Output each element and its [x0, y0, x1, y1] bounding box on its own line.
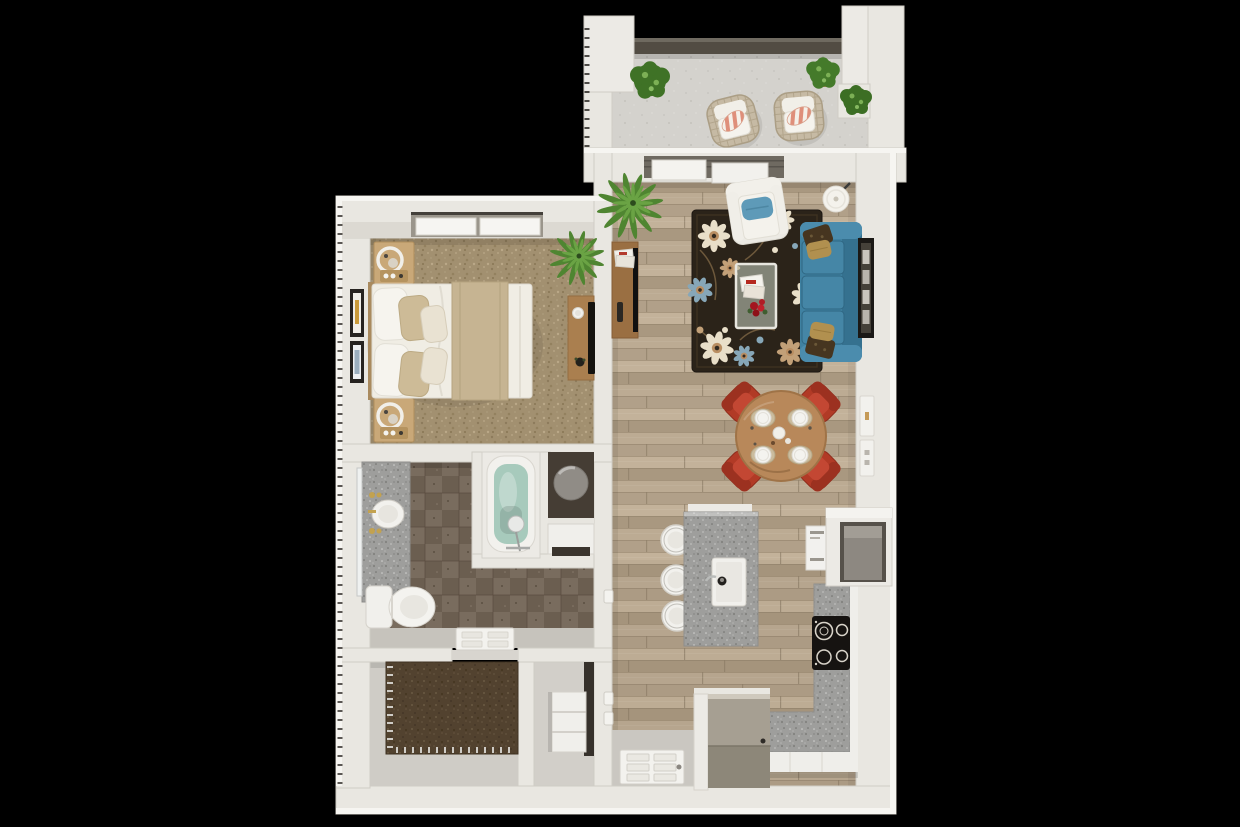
cooktop	[812, 616, 850, 670]
kitchen-island	[684, 504, 758, 646]
fridge-top	[708, 698, 770, 746]
bathroom-door-leaf	[456, 628, 514, 650]
pantry-cabinet	[826, 508, 892, 586]
water-heater-closet	[548, 452, 594, 524]
place-setting-1	[751, 409, 775, 427]
wall-closet-divider	[518, 662, 534, 786]
brass-handle	[369, 492, 375, 498]
bedroom-wall-art-1	[350, 289, 364, 337]
nightstand-2	[374, 398, 414, 442]
nightstand-1	[374, 242, 414, 284]
toilet	[366, 586, 435, 628]
shelf-cabinet	[552, 692, 586, 752]
window-pane	[416, 218, 476, 235]
cabinet-slot	[552, 547, 590, 556]
balcony-wall-right	[868, 6, 904, 152]
rim-bottom	[336, 808, 896, 814]
brass-spout	[368, 510, 376, 513]
pillow-accent	[420, 305, 449, 344]
media-console	[612, 242, 638, 338]
window-pane	[480, 218, 540, 235]
rim-left	[336, 196, 342, 786]
counter-side-right	[850, 584, 858, 752]
sofa	[800, 222, 862, 362]
vanity-mirror	[357, 468, 362, 596]
refrigerator	[694, 688, 770, 790]
bathtub	[482, 452, 540, 558]
window-head	[411, 212, 543, 215]
switch-panel	[860, 440, 874, 476]
remote-control	[617, 302, 623, 322]
wall-bathroom-closet-left	[336, 648, 452, 662]
wall-bathroom-closet-right	[518, 648, 612, 662]
wall-hinge-nub-2	[604, 692, 613, 705]
walk-in-closet	[386, 662, 518, 754]
fridge-handle	[761, 739, 766, 744]
fridge-front	[708, 746, 770, 788]
pillow-accent	[420, 347, 449, 386]
bedroom-desk	[568, 296, 595, 380]
balcony-railing-edge	[632, 38, 846, 42]
place-setting-4	[788, 446, 812, 464]
seat-cushion	[802, 276, 844, 309]
closet-carpet	[386, 662, 518, 754]
floor-plan-image: 3D top-down floor plan rendering of a on…	[0, 0, 1240, 827]
brass-handle-2	[377, 493, 382, 498]
place-setting-2	[788, 409, 812, 427]
lower-cabinet-fronts	[758, 752, 858, 772]
handheld-shower-head	[508, 516, 524, 532]
place-setting-3	[751, 446, 775, 464]
wall-oven-panel	[806, 526, 828, 570]
rim-right	[890, 148, 896, 812]
bedroom-tv	[588, 302, 595, 374]
rim-top	[584, 148, 906, 153]
bedroom-window	[411, 212, 543, 237]
brass-handle-3	[369, 528, 375, 534]
door-knob	[677, 765, 682, 770]
front-door-leaf	[620, 750, 684, 784]
thermostat-panel	[860, 396, 874, 436]
wall-hinge-nub-1	[604, 590, 613, 603]
fridge-side-panel	[694, 694, 708, 790]
accent-chair	[725, 176, 790, 246]
bedroom-wall-art-2	[350, 341, 364, 383]
linen-cabinet	[548, 524, 594, 556]
wall-bedroom-living	[594, 148, 612, 786]
toilet-tank	[366, 586, 392, 628]
wall-hinge-nub-3	[604, 712, 613, 725]
bed	[367, 282, 543, 407]
balcony-wall-block-topleft	[584, 16, 634, 92]
teapot	[773, 427, 785, 439]
brass-handle-4	[377, 529, 382, 534]
rim-bedroom-top	[336, 196, 612, 201]
living-room-wall-art	[858, 238, 874, 338]
coffee-table	[736, 264, 776, 328]
water-heater	[554, 466, 588, 500]
floor-plan-canvas: 3D top-down floor plan rendering of a on…	[0, 0, 1240, 827]
door-panel	[652, 160, 706, 180]
bathroom-door-threshold	[452, 650, 518, 660]
entry	[620, 750, 684, 784]
